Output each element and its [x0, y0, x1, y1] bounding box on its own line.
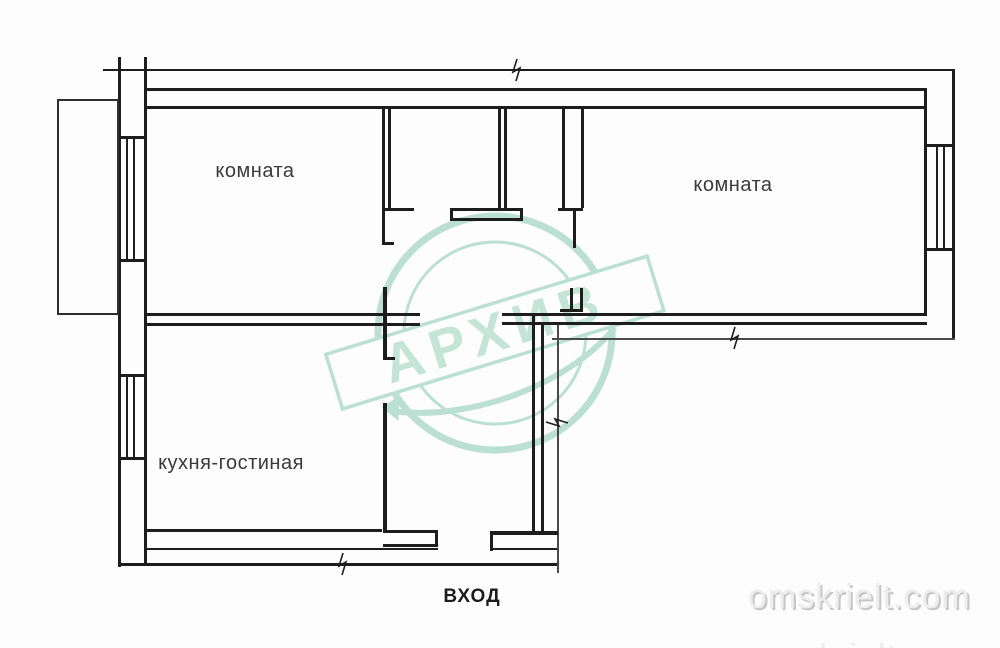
entrance-label: ВХОД	[422, 586, 522, 608]
room-2-label: комната	[658, 174, 808, 197]
kitchen-living-label: кухня-гостиная	[131, 452, 331, 475]
room-1-label: комната	[180, 160, 330, 183]
label-layer: комната комната кухня-гостиная ВХОД	[0, 0, 1000, 648]
floor-plan-canvas: АРХИВ комната комната кухня-гостиная ВХО…	[0, 0, 1000, 648]
